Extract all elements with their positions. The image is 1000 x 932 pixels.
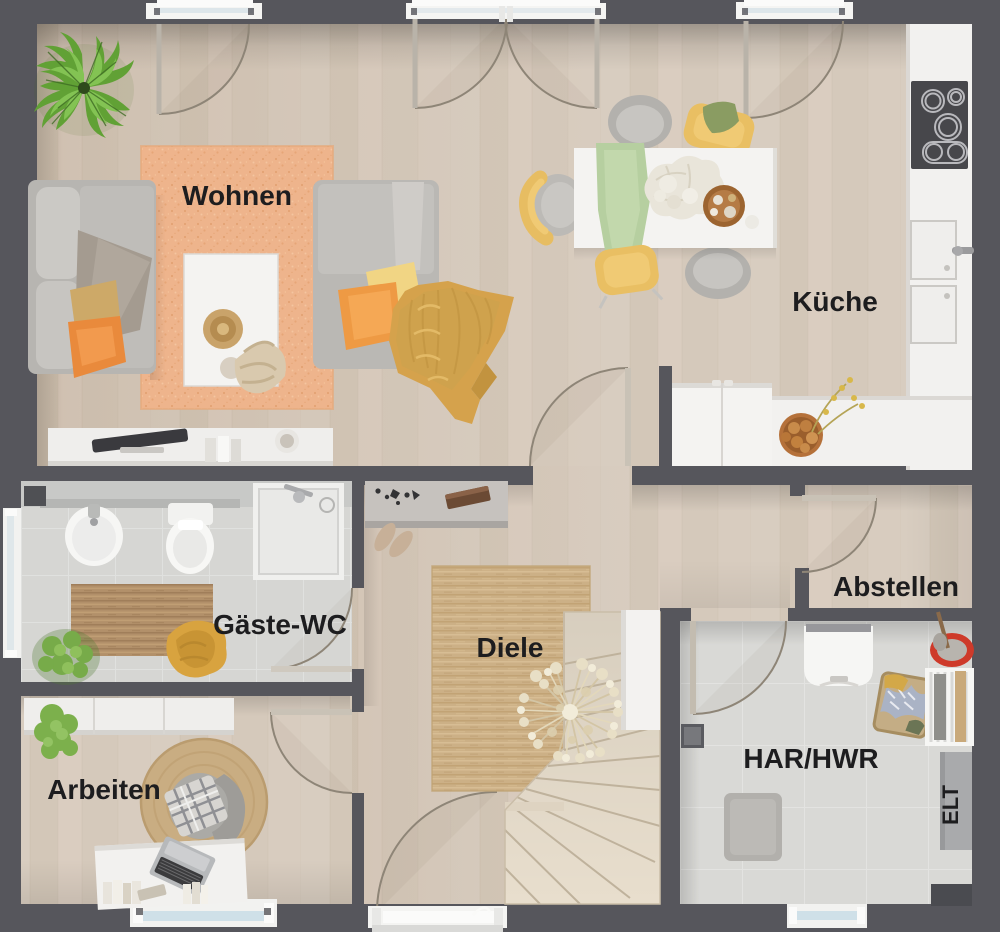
svg-text:HAR/HWR: HAR/HWR <box>743 743 878 774</box>
svg-text:Arbeiten: Arbeiten <box>47 774 161 805</box>
svg-text:Diele: Diele <box>477 632 544 663</box>
svg-text:ELT: ELT <box>938 784 963 824</box>
svg-text:Wohnen: Wohnen <box>182 180 292 211</box>
svg-text:Abstellen: Abstellen <box>833 571 959 602</box>
svg-text:Küche: Küche <box>792 286 878 317</box>
svg-text:Gäste-WC: Gäste-WC <box>213 609 347 640</box>
